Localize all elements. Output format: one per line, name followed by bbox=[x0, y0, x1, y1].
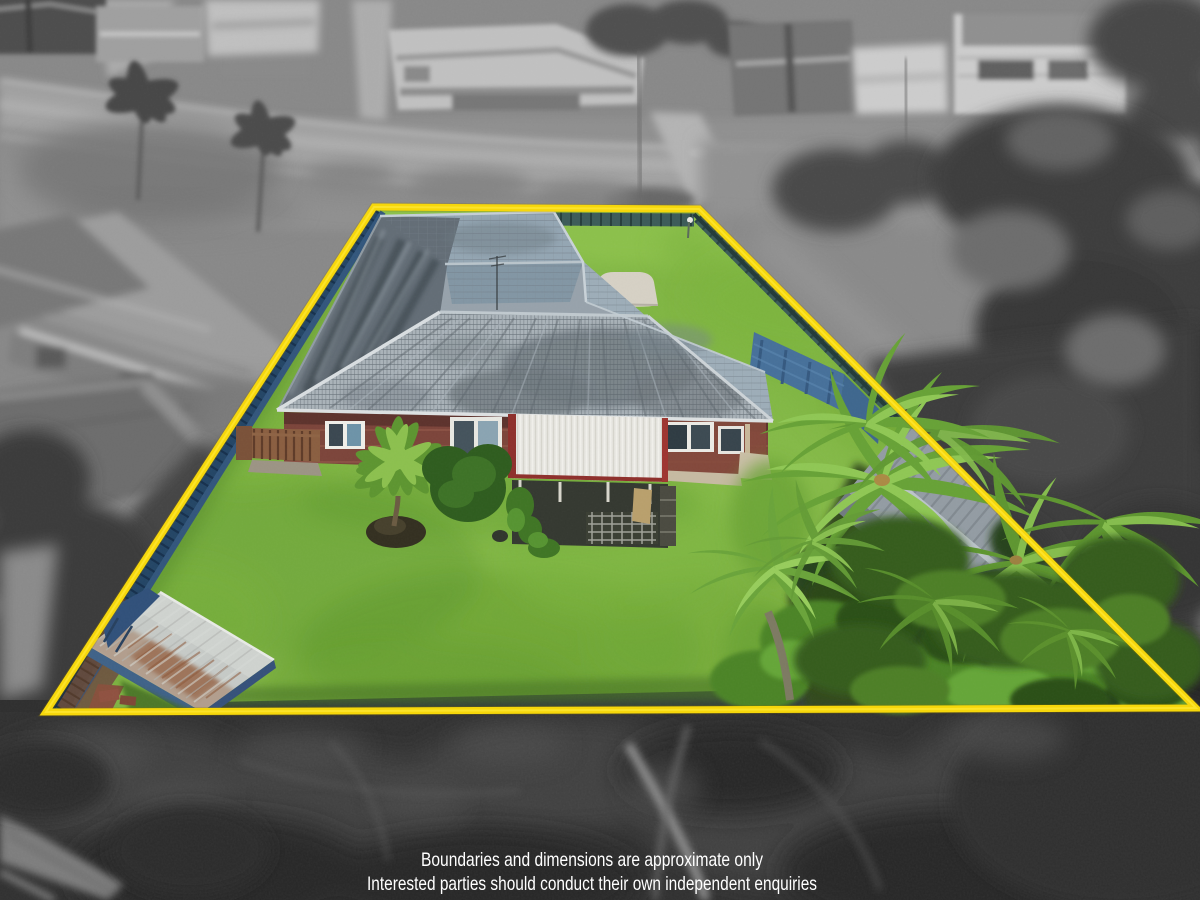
svg-text:Boundaries and dimensions are: Boundaries and dimensions are approximat… bbox=[421, 849, 763, 871]
svg-text:Interested parties should cond: Interested parties should conduct their … bbox=[367, 873, 817, 895]
